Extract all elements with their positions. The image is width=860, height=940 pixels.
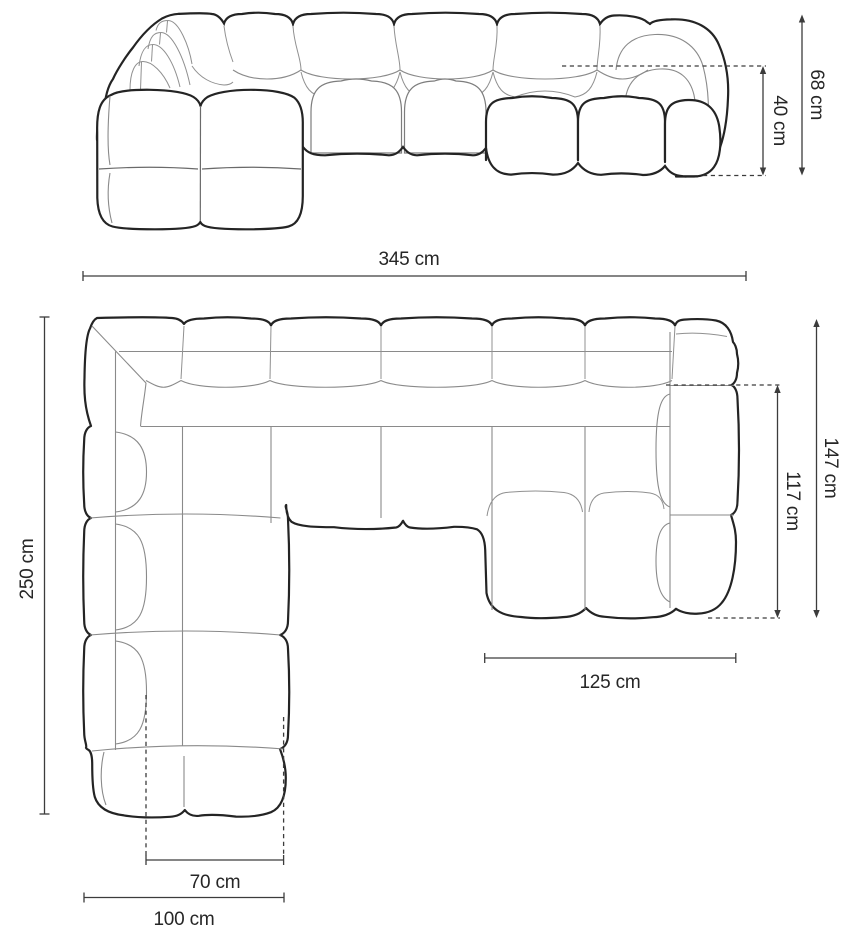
svg-text:125 cm: 125 cm <box>579 672 640 693</box>
svg-text:147 cm: 147 cm <box>820 437 841 498</box>
svg-text:70 cm: 70 cm <box>190 872 241 893</box>
svg-text:250 cm: 250 cm <box>17 538 38 599</box>
svg-text:100 cm: 100 cm <box>153 909 214 930</box>
svg-text:345 cm: 345 cm <box>378 249 439 270</box>
svg-text:68 cm: 68 cm <box>806 69 827 120</box>
svg-text:40 cm: 40 cm <box>769 95 790 146</box>
svg-text:117 cm: 117 cm <box>782 471 803 531</box>
